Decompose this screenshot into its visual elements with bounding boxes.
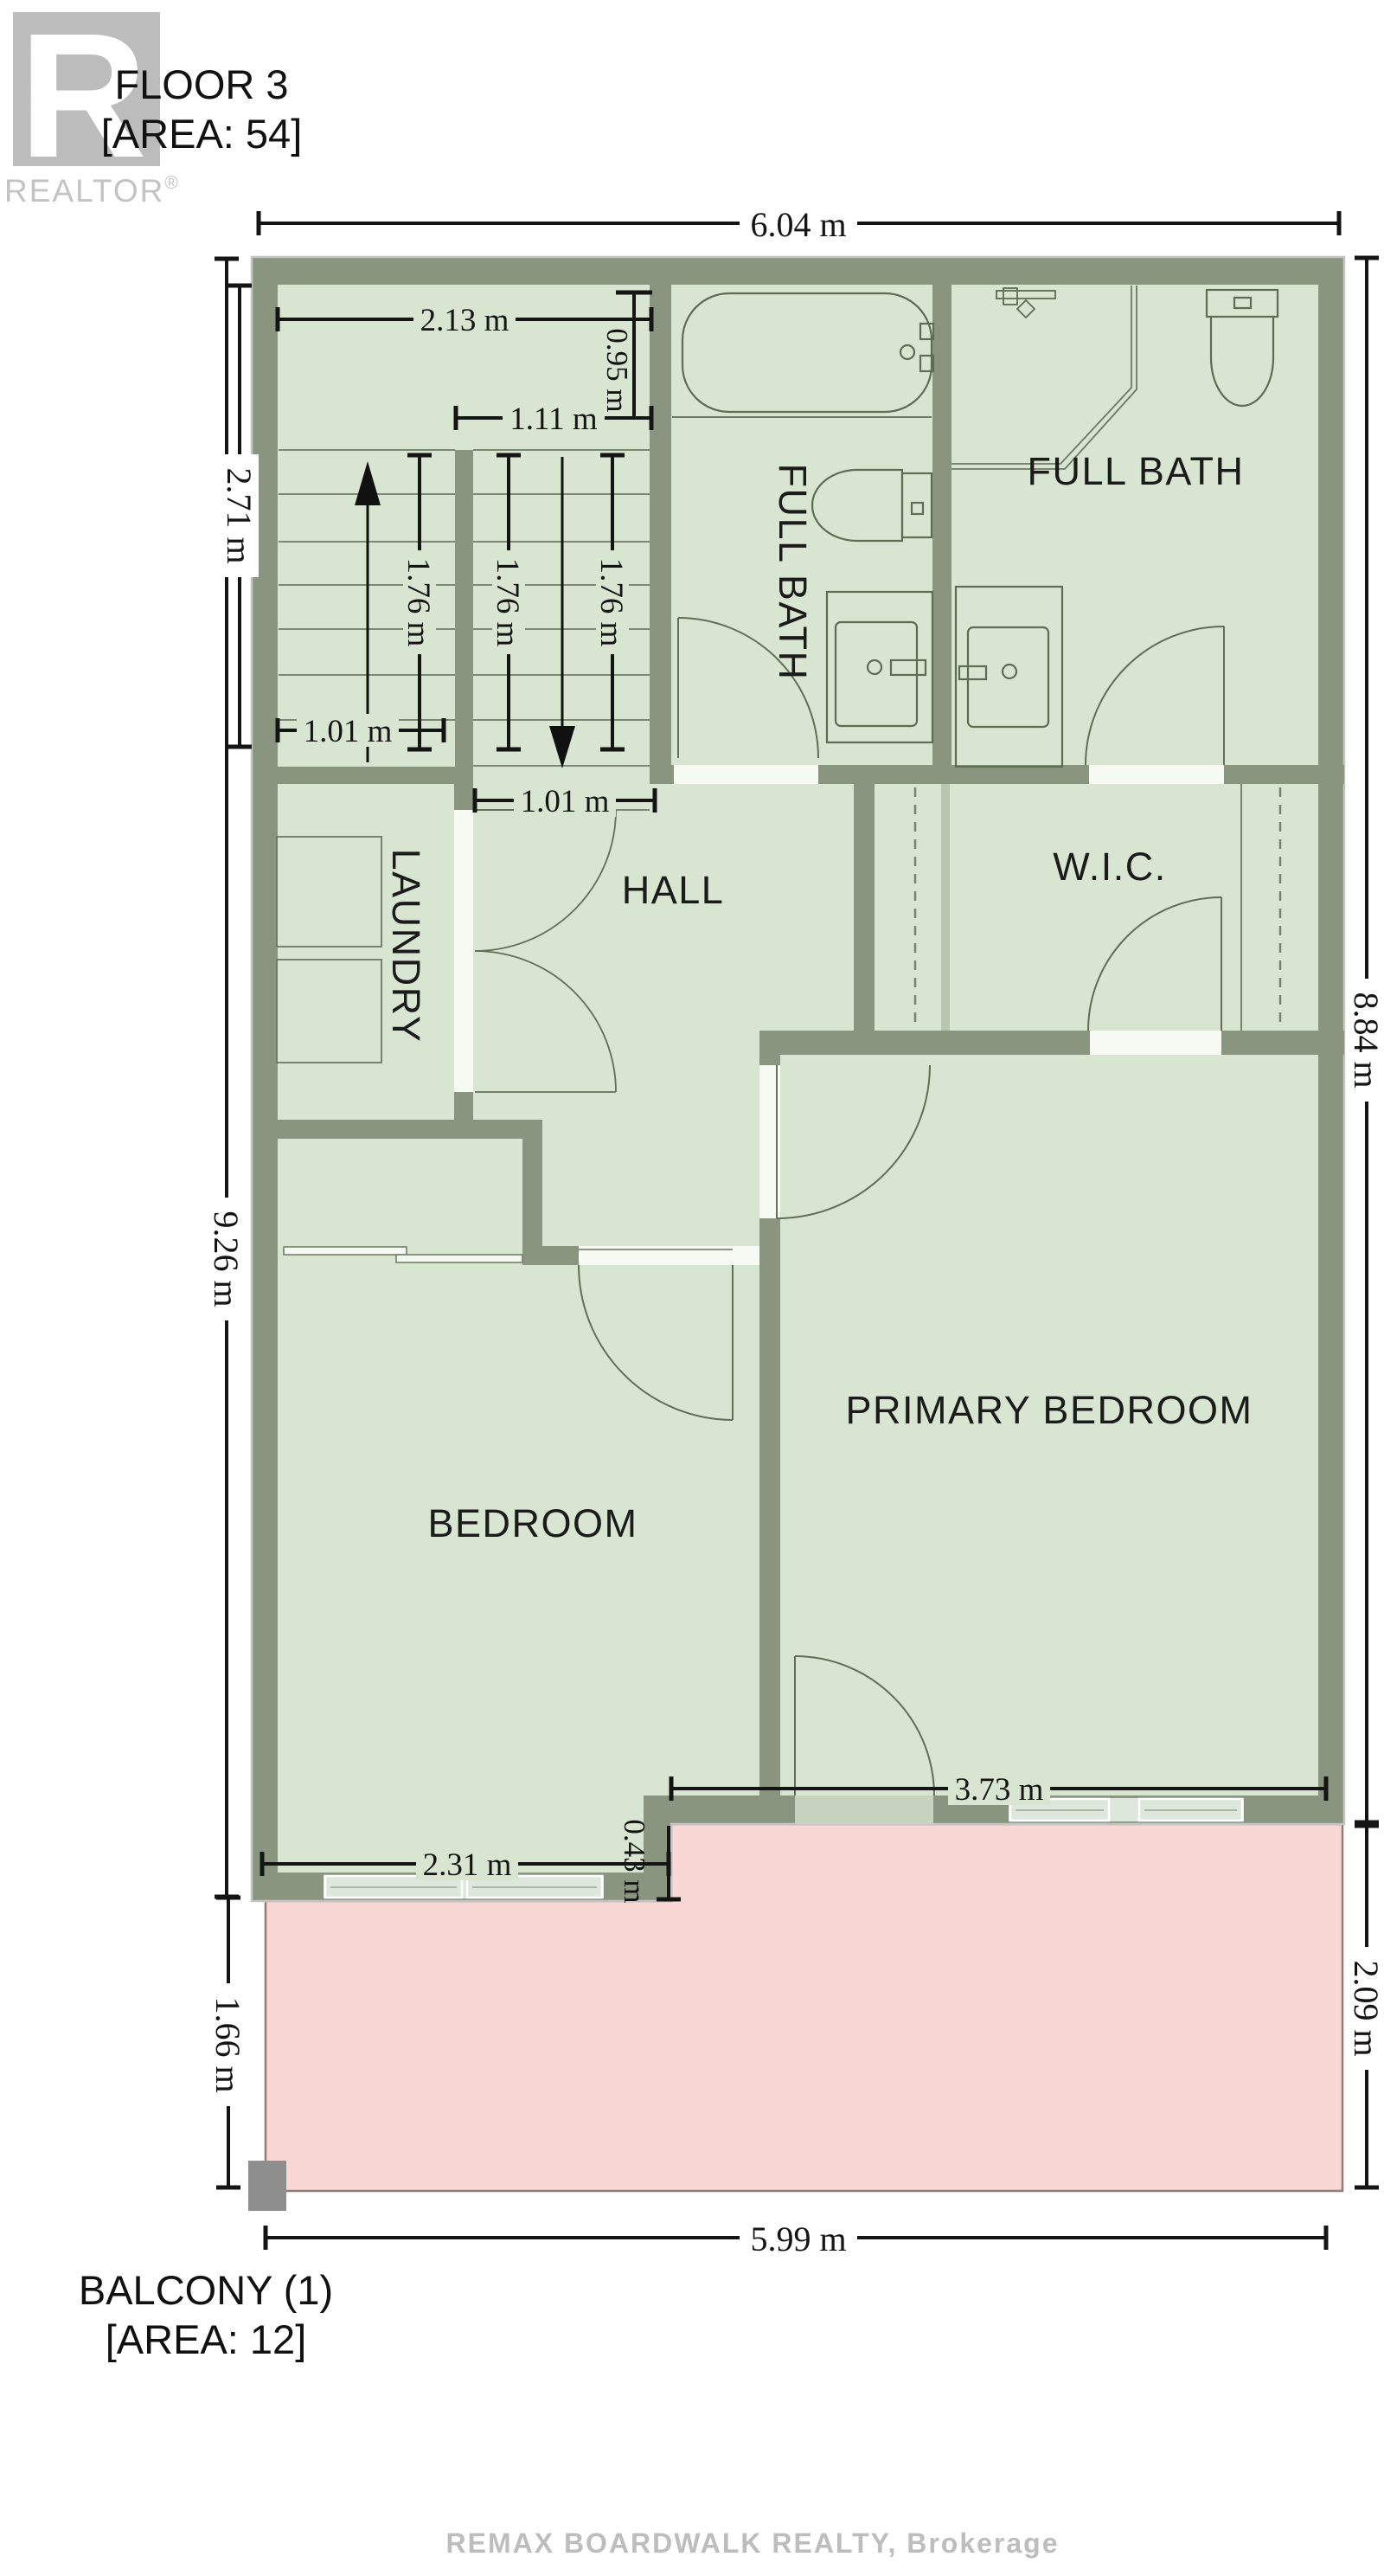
svg-text:9.26 m: 9.26 m <box>207 1211 246 1307</box>
svg-text:2.13 m: 2.13 m <box>420 303 509 338</box>
svg-text:1.76 m: 1.76 m <box>490 558 525 647</box>
svg-text:1.01 m: 1.01 m <box>521 784 610 819</box>
svg-text:1.66 m: 1.66 m <box>208 1996 247 2092</box>
svg-text:[AREA: 12]: [AREA: 12] <box>106 2316 307 2362</box>
svg-text:FLOOR 3: FLOOR 3 <box>114 61 288 107</box>
svg-text:REALTOR®: REALTOR® <box>4 173 180 209</box>
svg-text:BEDROOM: BEDROOM <box>427 1501 638 1545</box>
svg-text:5.99 m: 5.99 m <box>750 2219 846 2258</box>
svg-text:FULL BATH: FULL BATH <box>771 463 815 680</box>
svg-text:6.04 m: 6.04 m <box>750 205 846 244</box>
svg-text:LAUNDRY: LAUNDRY <box>384 849 428 1044</box>
svg-text:1.76 m: 1.76 m <box>400 558 436 647</box>
svg-text:W.I.C.: W.I.C. <box>1053 845 1167 889</box>
svg-text:3.73 m: 3.73 m <box>955 1772 1044 1808</box>
svg-text:HALL: HALL <box>622 868 725 912</box>
svg-text:PRIMARY BEDROOM: PRIMARY BEDROOM <box>846 1388 1253 1432</box>
svg-text:2.31 m: 2.31 m <box>423 1847 512 1883</box>
svg-text:8.84 m: 8.84 m <box>1347 992 1384 1088</box>
svg-text:[AREA: 54]: [AREA: 54] <box>101 111 303 157</box>
svg-text:1.76 m: 1.76 m <box>593 558 629 647</box>
svg-text:2.71 m: 2.71 m <box>220 467 259 563</box>
svg-text:2.09 m: 2.09 m <box>1347 1960 1384 2056</box>
svg-text:REMAX BOARDWALK REALTY, Broker: REMAX BOARDWALK REALTY, Brokerage <box>445 2528 1059 2559</box>
svg-text:1.01 m: 1.01 m <box>304 714 393 749</box>
svg-text:0.95 m: 0.95 m <box>600 328 634 412</box>
svg-text:1.11 m: 1.11 m <box>509 401 598 437</box>
svg-text:0.43 m: 0.43 m <box>618 1819 651 1903</box>
svg-text:BALCONY (1): BALCONY (1) <box>79 2267 333 2313</box>
svg-text:FULL BATH: FULL BATH <box>1027 449 1244 493</box>
